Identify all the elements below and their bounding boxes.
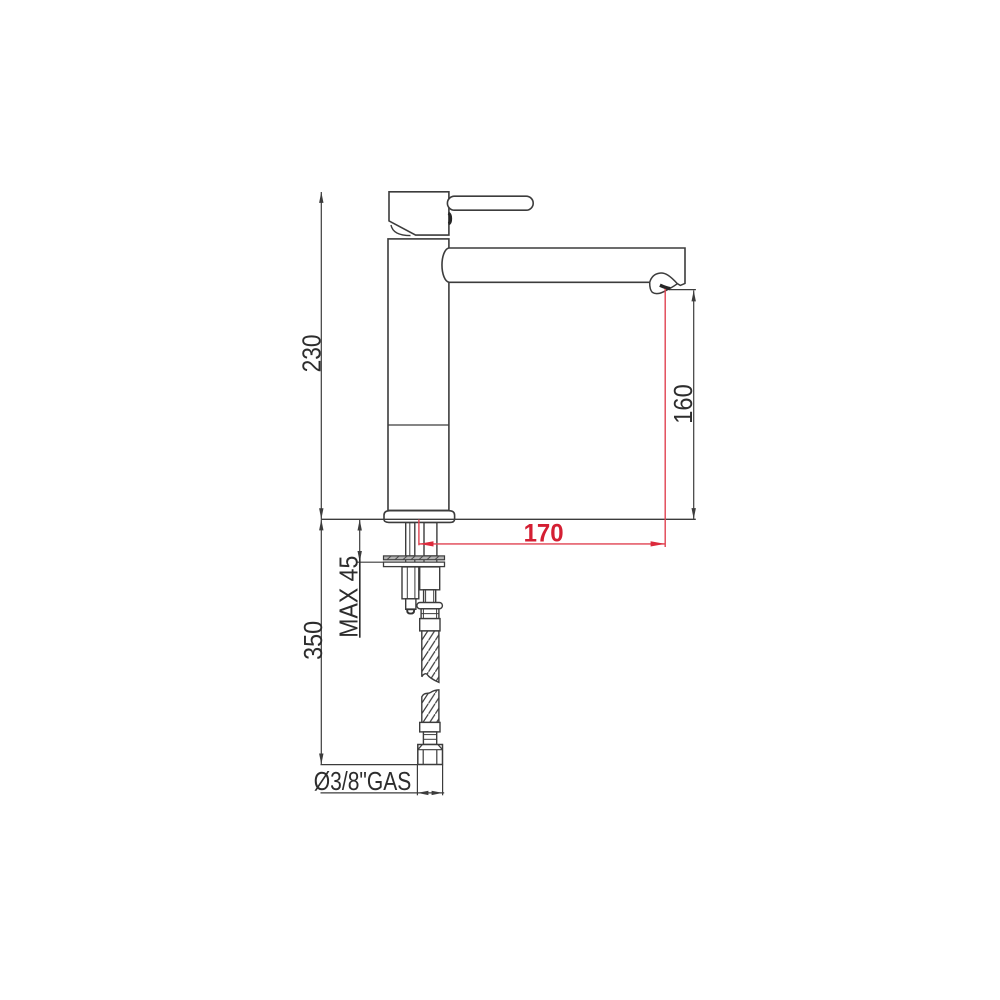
svg-text:Ø3/8"GAS: Ø3/8"GAS: [314, 766, 412, 796]
svg-text:MAX 45: MAX 45: [333, 556, 363, 638]
svg-text:230: 230: [297, 334, 327, 372]
svg-text:350: 350: [298, 621, 328, 660]
svg-text:170: 170: [524, 519, 564, 547]
svg-text:160: 160: [668, 384, 698, 424]
